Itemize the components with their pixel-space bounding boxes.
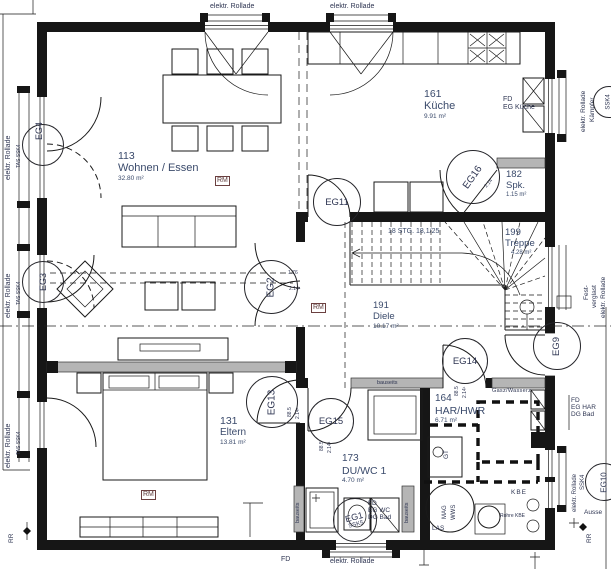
gasz-wasserz: Gasz/Wasserz [492,388,531,394]
dim-eg14-h: 2.14¹ [463,387,469,398]
room-name: Treppe [505,239,535,250]
rollade-left-3: elektr. Rollade [5,424,13,468]
fd-label: FD [503,96,535,104]
eg-kueche-label: EG Küche [503,104,535,112]
tag-eg16: EG16 [446,150,500,204]
tag-eg1: EG1 SSK5 [333,498,377,542]
rr-left: RR [8,534,15,543]
fd-eg-har: FD EG HAR DG Bad [571,397,596,418]
rollade-bottom: elektr. Rollade [330,558,374,566]
mag-label: MAG [442,505,449,519]
tas-ssk4-3: TAS SSK4 [17,431,23,455]
dining-table [163,75,281,123]
window-tilt-1 [205,32,268,74]
room-area: 4.28 m² [511,250,535,257]
sofa [122,206,236,247]
tag-eg9: EG9 [533,322,581,370]
room-area: 4.70 m² [342,477,386,484]
stairs-note: 18 STG. 18,1/25 [388,228,439,236]
room-name: Spk. [506,181,526,192]
room-number: 161 [424,88,455,100]
room-eltern: 131 Eltern 13.81 m² [220,415,246,446]
room-area: 6.71 m² [435,417,485,424]
tag-eg4: EG4 [22,124,64,166]
door-left-lower [47,398,96,447]
rollade-left-2: elektr. Rollade [5,274,13,318]
window-tilt-2 [330,32,393,74]
armchair [57,261,113,317]
room-kueche: 161 Küche 9.91 m² [424,88,455,120]
tag-eg2: EG2 [244,260,298,314]
bauseits-left: bauseits [295,503,301,524]
room-name: Diele [373,312,399,323]
room-area: 13.81 m² [220,439,246,446]
sideboard [118,338,228,360]
room-area: 10.17 m² [373,323,399,330]
gt-label: GT [443,450,450,459]
kbe-label: KBE [511,489,527,496]
tag-eg11: EG11 [313,178,361,226]
pipes-kbe [478,506,500,528]
rm-marker-wohnen: RM [215,176,230,186]
room-number: 113 [118,150,199,162]
room-number: 131 [220,415,246,427]
room-name: DU/WC 1 [342,465,386,477]
floor-plan: 113 Wohnen / Essen 32.80 m² 161 Küche 9.… [0,0,611,569]
ausse: Ausse [584,509,602,516]
shower [368,390,422,440]
rollade-right-bottom: elektr. Rollade [572,474,579,512]
room-spk: 182 Spk. 1.15 m² [506,170,526,199]
rr-right: RR [586,534,593,543]
bauseits-shower: bauseits [377,380,398,386]
verglast: verglast [591,285,598,308]
las-label: LAS [432,525,444,532]
room-har: 164 HAR/HWR 6.71 m² [435,393,485,424]
tag-eg13: EG13 [246,376,298,428]
rollade-top-2: elektr. Rollade [330,3,374,11]
fest: Fest- [583,285,590,300]
room-area: 32.80 m² [118,175,199,182]
room-wohnen: 113 Wohnen / Essen 32.80 m² [118,150,199,182]
room-duwc: 173 DU/WC 1 4.70 m² [342,453,386,484]
tag-eg14: EG14 [442,338,488,384]
floor-plan-drawing [0,0,611,569]
fd-bottom: FD [281,556,290,564]
room-diele: 191 Diele 10.17 m² [373,301,399,330]
dim-eg14-w: 88.5 [455,386,461,396]
tag-eg3: EG3 [22,261,64,303]
room-area: 1.15 m² [506,192,526,199]
rm-marker-eltern: RM [141,490,156,500]
rollade-right-top: elektr. Rollade [580,91,587,132]
wws-label: WWS [451,505,458,520]
rollade-right-mid: elektr. Rollade [600,277,607,318]
rm-marker-diele: RM [311,303,326,313]
tag-eg15: EG15 [308,398,354,444]
room-treppe: 199 Treppe 4.28 m² [505,228,535,257]
room-divider-dashed [299,32,307,212]
bauseits-right: bauseits [404,503,410,524]
room-number: 173 [342,453,386,465]
room-name: HAR/HWR [435,405,485,417]
furniture-bedroom [77,373,263,537]
fd-eg-kueche: FD EG Küche [503,96,535,111]
rollade-top-1: elektr. Rollade [210,3,254,11]
rohre-kbe: Rohre KBE [500,514,525,520]
room-name: Eltern [220,427,246,439]
room-area: 9.91 m² [424,113,455,120]
rollade-left-1: elektr. Rollade [5,136,13,180]
room-name: Wohnen / Essen [118,162,199,175]
room-name: Küche [424,100,455,113]
